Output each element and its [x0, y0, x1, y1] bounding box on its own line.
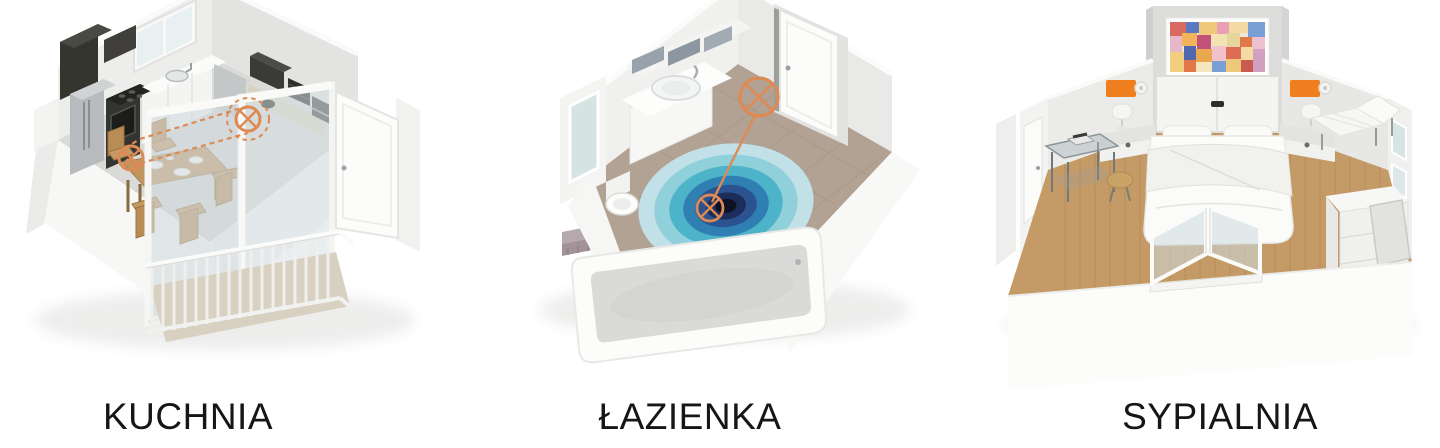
smart-device-orange [1290, 80, 1331, 97]
kitchen-sink [166, 71, 188, 82]
room-label-bathroom: ŁAZIENKA [599, 396, 782, 438]
panel-kitchen: KUCHNIA [0, 0, 480, 448]
bedroom-3d-render [960, 0, 1440, 390]
kitchen-3d-render [0, 0, 480, 390]
mirror-panel [560, 76, 606, 204]
kitchen-door-open [336, 92, 420, 252]
sensor-placement-infographic: KUCHNIA [0, 0, 1440, 448]
painting-artwork [1166, 18, 1269, 76]
leaning-panel [1370, 200, 1410, 266]
room-label-bedroom: SYPIALNIA [1122, 396, 1318, 438]
wall-frame [1392, 120, 1406, 160]
bathroom-3d-render [480, 0, 960, 390]
panel-bedroom: SYPIALNIA [960, 0, 1440, 448]
panel-bathroom: ŁAZIENKA [480, 0, 960, 448]
door-handle [786, 66, 791, 71]
door-handle [1036, 166, 1040, 170]
tub-faucet [795, 259, 801, 265]
smart-device-orange [1106, 80, 1147, 97]
door-handle [342, 166, 347, 171]
room-label-kitchen: KUCHNIA [103, 396, 273, 438]
